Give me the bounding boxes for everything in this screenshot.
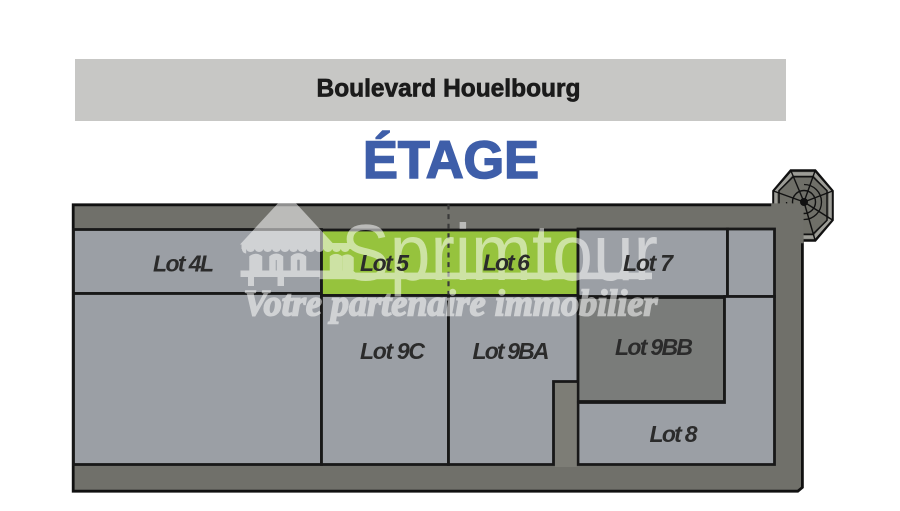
svg-text:Lot 7: Lot 7 <box>623 250 674 276</box>
svg-text:Lot 6: Lot 6 <box>483 250 530 276</box>
svg-text:Lot 9BB: Lot 9BB <box>615 334 693 360</box>
svg-text:Lot 4L: Lot 4L <box>153 251 214 277</box>
svg-text:Lot 5: Lot 5 <box>360 250 410 276</box>
svg-text:Votre partenaire immobilier: Votre partenaire immobilier <box>244 284 659 325</box>
svg-text:Lot 9BA: Lot 9BA <box>473 338 550 364</box>
svg-text:Boulevard Houelbourg: Boulevard Houelbourg <box>317 75 581 103</box>
svg-text:Lot 9C: Lot 9C <box>360 338 425 364</box>
svg-text:ÉTAGE: ÉTAGE <box>363 130 539 190</box>
svg-text:Lot 8: Lot 8 <box>650 421 698 447</box>
